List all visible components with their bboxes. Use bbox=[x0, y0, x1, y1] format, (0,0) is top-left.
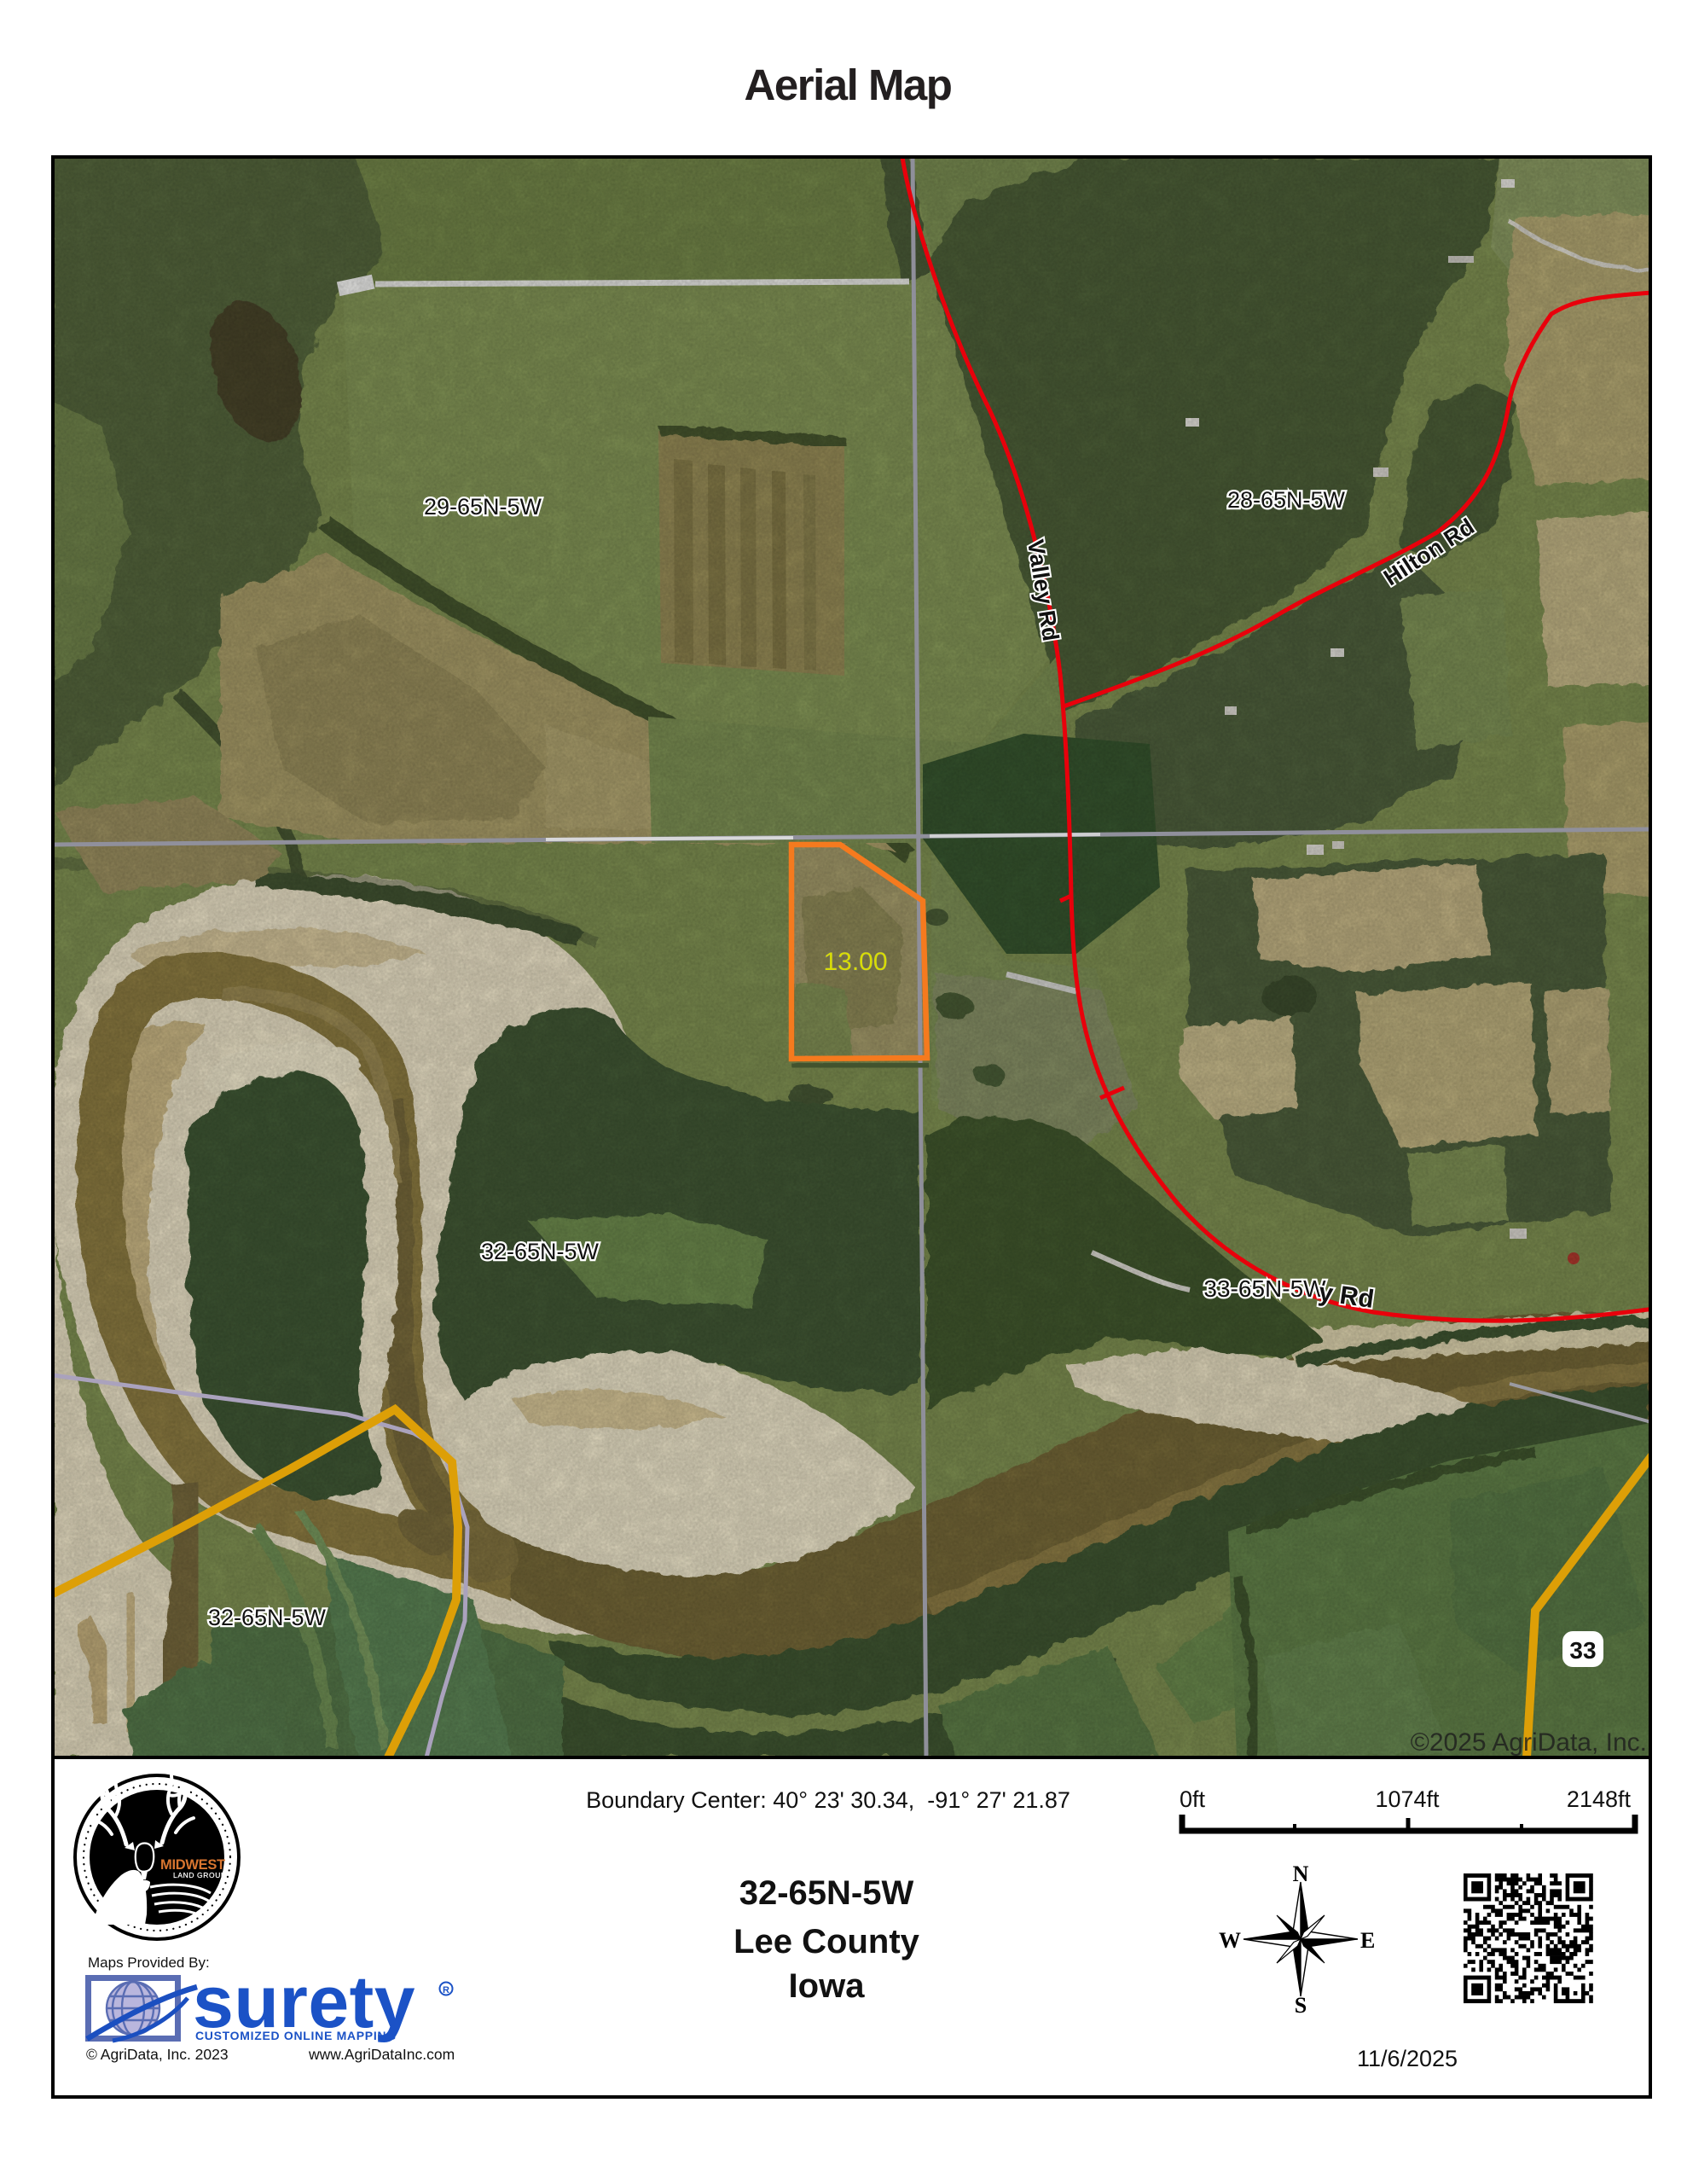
svg-text:11/6/2025: 11/6/2025 bbox=[1357, 2046, 1458, 2071]
svg-text:R: R bbox=[443, 1985, 449, 1995]
svg-text:28-65N-5W: 28-65N-5W bbox=[1227, 487, 1346, 513]
svg-text:CUSTOMIZED ONLINE MAPPING: CUSTOMIZED ONLINE MAPPING bbox=[195, 2029, 397, 2042]
svg-text:S: S bbox=[1295, 1993, 1307, 2018]
svg-text:33: 33 bbox=[1569, 1637, 1596, 1664]
svg-text:Lee County: Lee County bbox=[733, 1923, 920, 1960]
svg-text:1074ft: 1074ft bbox=[1375, 1786, 1440, 1812]
svg-text:© AgriData, Inc. 2023: © AgriData, Inc. 2023 bbox=[86, 2046, 229, 2063]
svg-text:www.AgriDataInc.com: www.AgriDataInc.com bbox=[308, 2046, 455, 2063]
svg-text:©2025 AgriData, Inc.: ©2025 AgriData, Inc. bbox=[1411, 1728, 1647, 1757]
svg-text:Maps Provided By:: Maps Provided By: bbox=[88, 1955, 210, 1971]
svg-text:0ft: 0ft bbox=[1180, 1786, 1206, 1812]
svg-text:13.00: 13.00 bbox=[823, 948, 887, 976]
svg-text:Iowa: Iowa bbox=[789, 1967, 866, 2005]
svg-text:32-65N-5W: 32-65N-5W bbox=[739, 1874, 914, 1912]
svg-text:LAND GROUP: LAND GROUP bbox=[173, 1871, 226, 1879]
svg-text:E: E bbox=[1360, 1928, 1375, 1953]
svg-text:2148ft: 2148ft bbox=[1567, 1786, 1632, 1812]
svg-text:N: N bbox=[1293, 1862, 1309, 1886]
svg-text:29-65N-5W: 29-65N-5W bbox=[424, 494, 542, 520]
svg-text:32-65N-5W: 32-65N-5W bbox=[481, 1239, 600, 1264]
svg-text:Boundary Center: 40° 23' 30.34: Boundary Center: 40° 23' 30.34, -91° 27'… bbox=[586, 1787, 1070, 1813]
svg-text:Aerial Map: Aerial Map bbox=[745, 61, 952, 109]
svg-text:32-65N-5W: 32-65N-5W bbox=[208, 1605, 327, 1630]
svg-text:33-65N-5W: 33-65N-5W bbox=[1203, 1275, 1326, 1302]
svg-text:W: W bbox=[1219, 1928, 1241, 1953]
